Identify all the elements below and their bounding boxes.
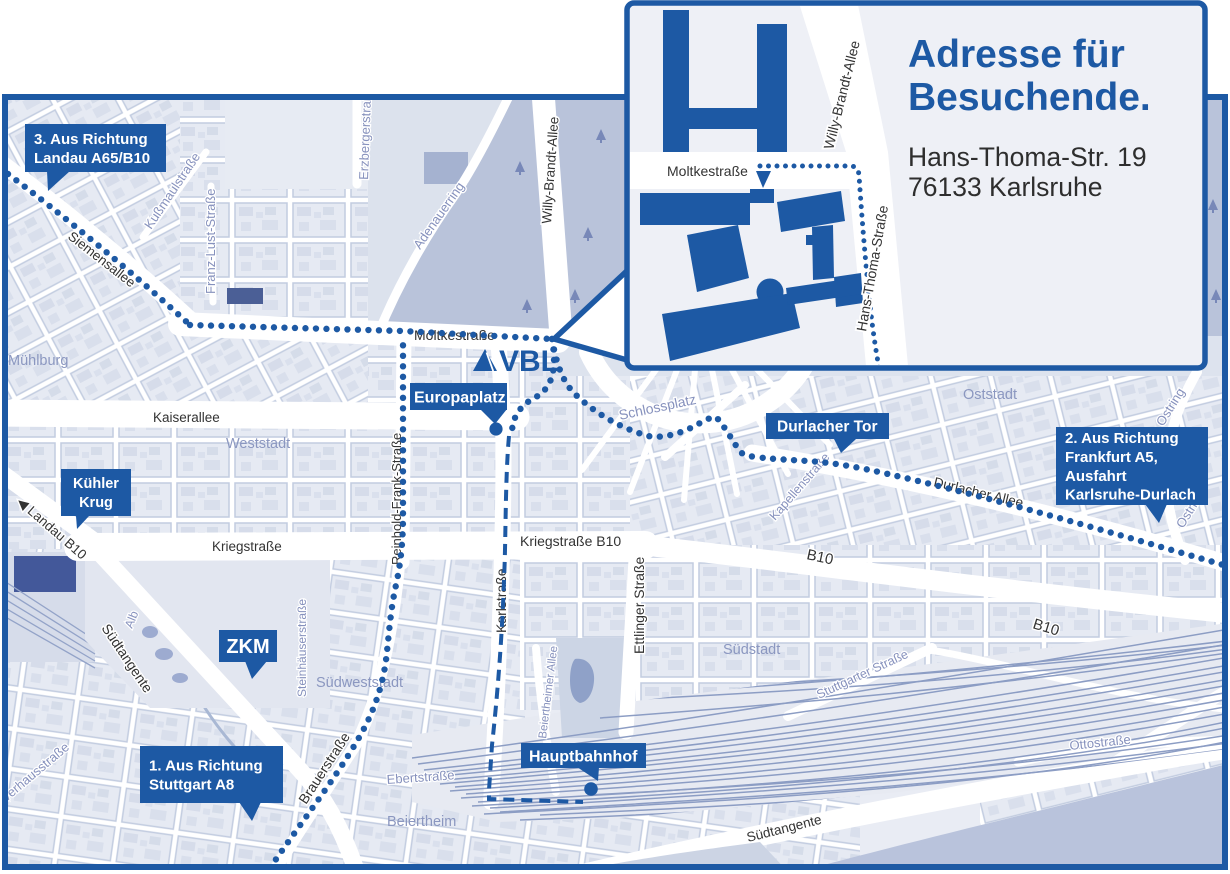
svg-text:Stuttgart A8: Stuttgart A8 bbox=[149, 776, 234, 793]
svg-text:Südstadt: Südstadt bbox=[723, 642, 780, 658]
svg-text:76133 Karlsruhe: 76133 Karlsruhe bbox=[908, 172, 1102, 202]
svg-text:Weststadt: Weststadt bbox=[226, 436, 290, 452]
svg-text:Ausfahrt: Ausfahrt bbox=[1065, 468, 1127, 485]
svg-text:Frankfurt A5,: Frankfurt A5, bbox=[1065, 449, 1158, 466]
svg-text:Beiertheim: Beiertheim bbox=[387, 814, 456, 830]
svg-text:Oststadt: Oststadt bbox=[963, 387, 1017, 403]
svg-text:Südweststadt: Südweststadt bbox=[316, 675, 403, 691]
svg-text:Steinhäuserstraße: Steinhäuserstraße bbox=[295, 599, 309, 697]
svg-text:Kühler: Kühler bbox=[73, 476, 119, 492]
svg-text:Karlsruhe-Durlach: Karlsruhe-Durlach bbox=[1065, 487, 1196, 504]
svg-text:Hans-Thoma-Str. 19: Hans-Thoma-Str. 19 bbox=[908, 142, 1147, 172]
svg-text:VBL: VBL bbox=[499, 345, 559, 378]
svg-text:Adresse für: Adresse für bbox=[908, 33, 1125, 76]
svg-text:Moltkestraße: Moltkestraße bbox=[667, 163, 748, 179]
svg-text:Kaiserallee: Kaiserallee bbox=[153, 410, 220, 425]
svg-text:Mühlburg: Mühlburg bbox=[8, 353, 68, 369]
svg-text:Franz-Lust-Straße: Franz-Lust-Straße bbox=[203, 189, 218, 294]
svg-text:ZKM: ZKM bbox=[226, 636, 269, 658]
svg-text:Landau A65/B10: Landau A65/B10 bbox=[34, 150, 150, 167]
svg-text:Kriegstraße: Kriegstraße bbox=[212, 539, 282, 554]
svg-text:Durlacher Tor: Durlacher Tor bbox=[777, 419, 878, 436]
svg-text:2. Aus Richtung: 2. Aus Richtung bbox=[1065, 430, 1179, 447]
svg-text:Besuchende.: Besuchende. bbox=[908, 76, 1151, 119]
svg-text:Europaplatz: Europaplatz bbox=[414, 389, 506, 406]
svg-text:Hauptbahnhof: Hauptbahnhof bbox=[529, 748, 638, 765]
svg-text:1. Aus Richtung: 1. Aus Richtung bbox=[149, 757, 263, 774]
svg-text:3. Aus Richtung: 3. Aus Richtung bbox=[34, 131, 148, 148]
svg-text:Ettlinger Straße: Ettlinger Straße bbox=[631, 557, 647, 654]
svg-text:Krug: Krug bbox=[79, 495, 113, 511]
svg-text:Kriegstraße B10: Kriegstraße B10 bbox=[520, 533, 621, 549]
